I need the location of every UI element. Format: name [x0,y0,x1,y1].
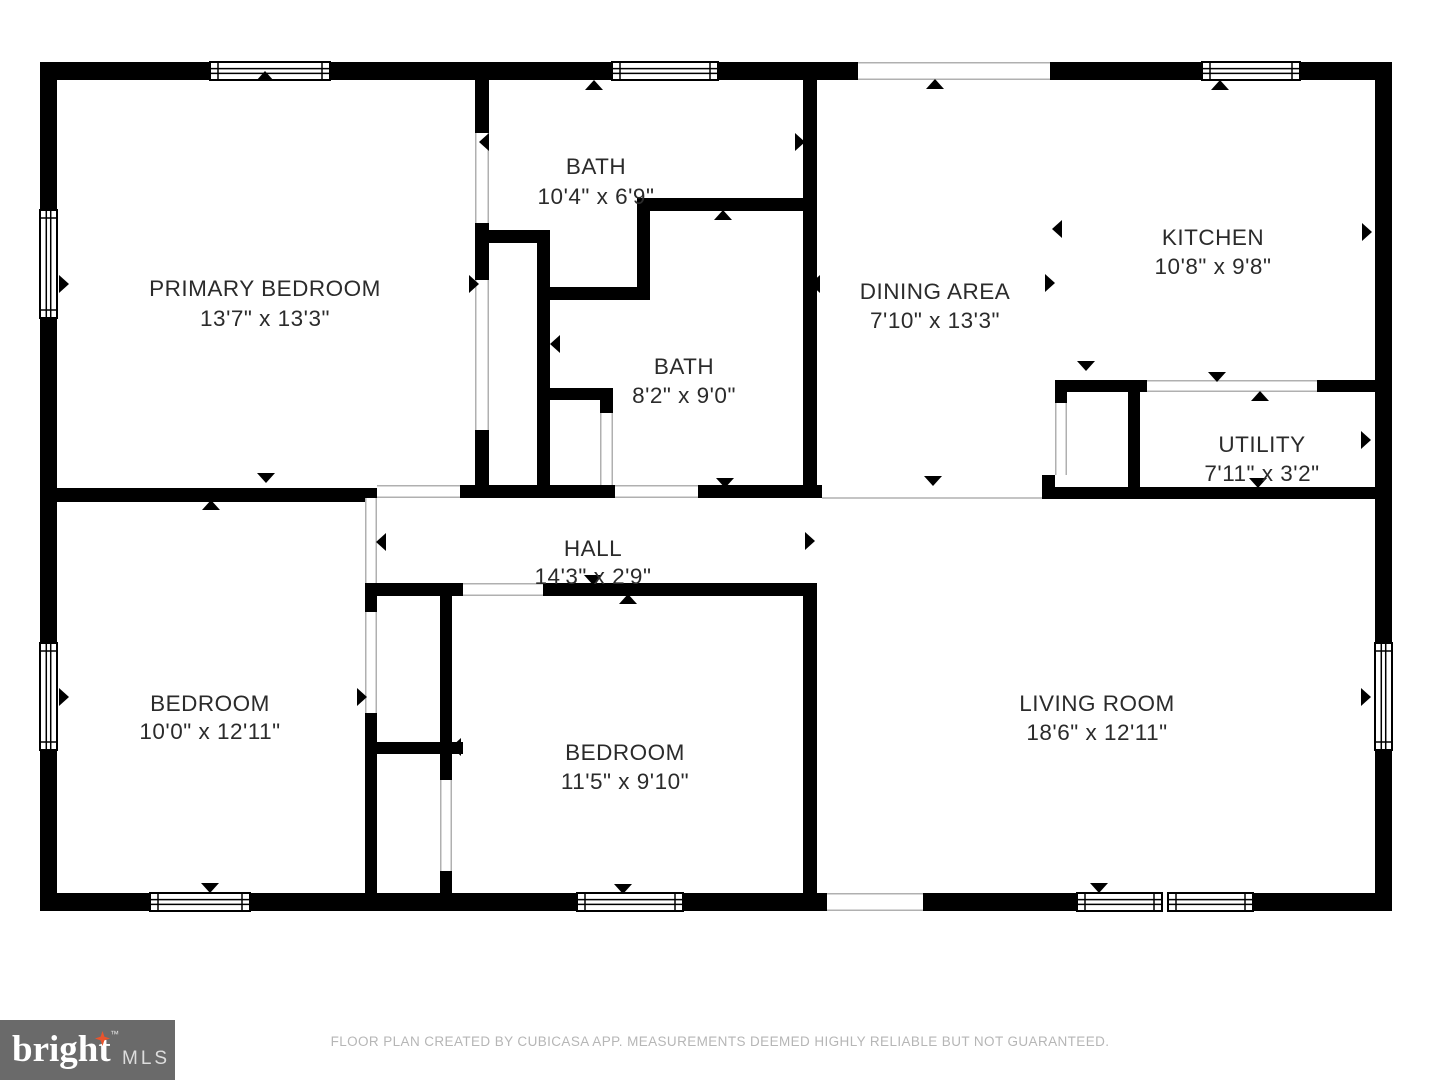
wall-segment [637,198,803,211]
window [40,643,57,750]
door-direction-arrow [1251,391,1269,401]
room-dims-dining-area: 7'10" x 13'3" [870,308,1000,333]
wall-segment [365,713,377,894]
wall-segment [550,388,613,400]
door-direction-arrow [714,210,732,220]
wall-segment [40,62,57,210]
door-opening [827,893,923,911]
door-direction-arrow [59,275,69,293]
door-direction-arrow [1361,688,1371,706]
door-direction-arrow [1362,223,1372,241]
wall-segment [537,230,550,488]
room-dims-bedroom-left: 10'0" x 12'11" [139,719,280,744]
door-direction-arrow [201,883,219,893]
wall-segment [550,287,650,300]
floorplan-drawing: PRIMARY BEDROOM 13'7" x 13'3" BATH 10'4"… [0,0,1440,1080]
room-name-hall: HALL [564,536,622,561]
door-direction-arrow [1077,361,1095,371]
room-name-bath-1: BATH [566,154,626,179]
room-dims-living-room: 18'6" x 12'11" [1026,720,1167,745]
door-direction-arrow [926,79,944,89]
wall-segment [698,485,822,498]
window [40,210,57,318]
room-name-primary-bedroom: PRIMARY BEDROOM [149,276,381,301]
wall-segment [1317,380,1392,392]
door-direction-arrow [924,476,942,486]
wall-segment [600,400,613,413]
wall-segment [40,62,210,80]
door-opening [1147,380,1317,392]
wall-segment [1055,392,1067,403]
wall-segment [1128,392,1140,487]
door-opening [615,485,698,498]
room-dims-bath-2: 8'2" x 9'0" [632,383,736,408]
wall-segment [365,583,377,612]
door-direction-arrow [550,335,560,353]
floor-plan-page: PRIMARY BEDROOM 13'7" x 13'3" BATH 10'4"… [0,0,1440,1080]
wall-segment [683,893,827,911]
room-dims-bath-1: 10'4" x 6'9" [538,184,655,209]
wall-segment [803,583,817,894]
window [1375,643,1392,750]
wall-segment [365,583,463,596]
door-direction-arrow [1361,431,1371,449]
window [612,62,718,80]
door-opening [377,485,460,498]
door-direction-arrow [257,473,275,483]
room-name-utility: UTILITY [1218,432,1305,457]
wall-segment [1375,62,1392,643]
wall-segment [803,80,817,498]
wall-segment [637,198,650,300]
window [577,893,683,911]
door-direction-arrow [59,688,69,706]
wall-segment [1050,62,1202,80]
wall-segment [475,80,489,133]
wall-segment [1375,750,1392,911]
room-name-kitchen: KITCHEN [1162,225,1264,250]
door-opening [475,280,489,430]
window [1077,893,1162,911]
room-dims-utility: 7'11" x 3'2" [1204,461,1319,486]
wall-segment [1042,475,1055,487]
wall-segment [40,318,57,643]
wall-segment [1055,380,1147,392]
door-direction-arrow [585,80,603,90]
wall-segment [40,488,377,502]
walls [40,62,1392,911]
door-opening [463,583,543,596]
door-direction-arrows [59,71,1372,894]
window [1168,893,1253,911]
room-dims-primary-bedroom: 13'7" x 13'3" [200,306,330,331]
disclaimer-text: FLOOR PLAN CREATED BY CUBICASA APP. MEAS… [0,1034,1440,1049]
door-opening [1055,403,1067,475]
wall-segment [1042,487,1392,499]
room-name-bedroom-middle: BEDROOM [565,740,685,765]
wall-segment [365,742,463,754]
room-dims-kitchen: 10'8" x 9'8" [1155,254,1272,279]
wall-segment [440,871,452,894]
room-name-bath-2: BATH [654,354,714,379]
door-direction-arrow [805,532,815,550]
door-direction-arrow [1211,80,1229,90]
room-name-dining-area: DINING AREA [860,279,1011,304]
wall-segment [923,893,1077,911]
door-direction-arrow [1052,220,1062,238]
wall-segment [460,485,615,498]
window [150,893,250,911]
wall-segment [250,893,577,911]
door-direction-arrow [1090,883,1108,893]
door-opening [600,413,613,485]
door-direction-arrow [1045,274,1055,292]
wall-segment [1253,893,1392,911]
brightmls-logo-mls-text: MLS [122,1048,170,1070]
wall-segment [718,62,858,80]
brightmls-logo: bright ™ MLS [0,1020,175,1080]
wall-segment [40,750,57,911]
room-dims-bedroom-middle: 11'5" x 9'10" [561,769,689,794]
door-opening [440,780,452,871]
window [1202,62,1300,80]
door-opening [858,62,1050,80]
room-dims-hall: 14'3" x 2'9" [535,564,652,589]
door-opening [365,498,377,583]
wall-segment [330,62,612,80]
room-labels: PRIMARY BEDROOM 13'7" x 13'3" BATH 10'4"… [139,154,1319,794]
door-opening [365,612,377,713]
room-name-bedroom-left: BEDROOM [150,691,270,716]
door-direction-arrow [376,533,386,551]
room-name-living-room: LIVING ROOM [1019,691,1175,716]
